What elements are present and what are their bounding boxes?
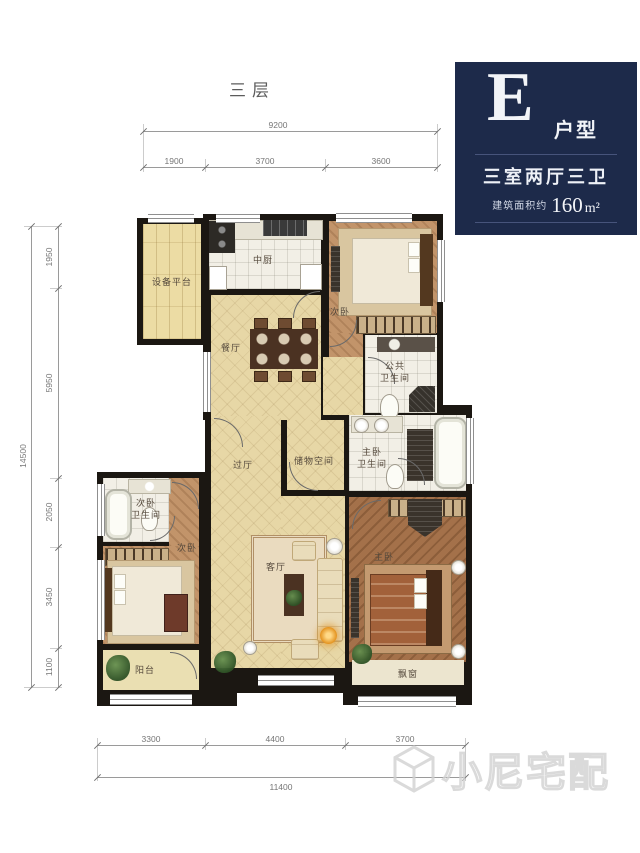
dim-bottom-seg-2: 4400: [245, 734, 305, 744]
label-balcony: 阳台: [115, 664, 175, 676]
label-second-bath: 次卧 卫生间: [116, 497, 176, 521]
window-dining: [203, 352, 211, 412]
dining-chair: [302, 318, 316, 329]
label-bay-window: 飘窗: [378, 668, 438, 680]
bedroom-north-wardrobe: [356, 316, 436, 334]
pillow: [114, 590, 126, 605]
label-master: 主卧: [354, 551, 414, 563]
window-bay: [358, 696, 456, 707]
window-living: [258, 675, 334, 686]
area-label: 建筑面积约: [492, 201, 547, 212]
dim-top-seg-1: 1900: [144, 156, 204, 166]
fridge: [300, 264, 322, 290]
second-bath-sink-counter: [128, 479, 171, 494]
dim-left-seg-1: 1950: [44, 240, 54, 274]
plant: [214, 651, 236, 673]
entry-hall: [323, 357, 363, 415]
label-dining: 餐厅: [201, 342, 261, 354]
dim-left-seg-5: 1100: [44, 650, 54, 684]
master-bath-sink: [354, 418, 369, 433]
dim-left-seg-3: 2050: [44, 495, 54, 529]
range-hood: [263, 220, 307, 236]
floor-plan-page: 三层 E 户型 三室两厅三卫 建筑面积约160m² 9200 1900 3700…: [0, 0, 640, 853]
label-bedroom-west: 次卧: [157, 542, 217, 554]
dim-left-seg-2: 5950: [44, 366, 54, 400]
label-kitchen: 中厨: [233, 254, 293, 266]
window-master-bath: [466, 418, 474, 484]
window-equipment: [148, 214, 194, 223]
pillow: [408, 242, 420, 257]
master-headboard: [426, 570, 442, 646]
dining-chair: [302, 371, 316, 382]
window-bedroom-north: [336, 213, 412, 223]
window-bedroom-north-east: [437, 240, 445, 302]
dim-line-top-total: [143, 131, 437, 132]
bedroom-north-headboard: [420, 234, 433, 306]
dining-chair: [254, 318, 268, 329]
dim-left-total: 14500: [18, 439, 28, 473]
public-bath-sink-counter: [377, 337, 435, 352]
ceiling-lamp: [451, 644, 466, 659]
ceiling-lamp: [243, 641, 257, 655]
dining-chair: [278, 318, 292, 329]
unit-area: 建筑面积约160m²: [455, 193, 637, 218]
area-unit: m²: [585, 201, 600, 216]
plant: [286, 590, 302, 606]
label-living: 客厅: [246, 561, 306, 573]
unit-info-box: E 户型 三室两厅三卫 建筑面积约160m²: [455, 62, 637, 235]
master-bath-sink: [374, 418, 389, 433]
label-bedroom-north: 次卧: [310, 306, 370, 318]
dim-line-left-segments: [58, 226, 59, 687]
master-tv-cabinet: [351, 578, 359, 638]
dim-top-total: 9200: [248, 120, 308, 130]
window-kitchen: [216, 214, 260, 223]
dim-left-seg-4: 3450: [44, 580, 54, 614]
pillow: [408, 258, 420, 273]
unit-type-suffix: 户型: [554, 114, 598, 143]
unit-layout-text: 三室两厅三卫: [455, 163, 637, 189]
window-balcony: [110, 694, 192, 705]
dining-chair: [278, 371, 292, 382]
kitchen-sink: [209, 266, 227, 290]
dim-bottom-seg-1: 3300: [121, 734, 181, 744]
window-second-bath: [97, 484, 105, 536]
label-equipment-platform: 设备平台: [142, 276, 202, 288]
watermark-text: 小尼宅配: [442, 740, 610, 798]
watermark: 小尼宅配: [392, 740, 610, 798]
dim-bottom-total: 11400: [251, 782, 311, 792]
dining-chair: [254, 371, 268, 382]
window-bedroom-west: [97, 560, 105, 640]
bedroom-north-dresser: [331, 246, 340, 292]
unit-type-letter: E: [487, 58, 534, 138]
watermark-cube-icon: [392, 744, 436, 794]
dim-line-left-total: [31, 226, 32, 687]
armchair: [292, 541, 316, 561]
floor-level-title: 三层: [222, 76, 282, 101]
area-value: 160: [551, 193, 583, 217]
info-divider-top: [475, 154, 617, 155]
dim-line-top-segments: [143, 167, 437, 168]
ceiling-lamp: [451, 560, 466, 575]
label-master-bath: 主卧 卫生间: [342, 446, 402, 470]
stove: [209, 221, 235, 253]
armchair: [291, 639, 319, 660]
label-public-bath: 公共 卫生间: [365, 360, 425, 384]
pillow: [114, 574, 126, 589]
pillow: [414, 578, 427, 593]
bathtub-master: [434, 417, 467, 489]
bedroom-west-bench: [164, 594, 188, 632]
label-storage: 储物空间: [284, 455, 344, 467]
info-divider-bottom: [475, 222, 617, 223]
label-hallway: 过厅: [213, 459, 273, 471]
bedroom-west-headboard: [104, 568, 112, 632]
dim-top-seg-2: 3700: [235, 156, 295, 166]
plant: [352, 644, 372, 664]
floor-lamp: [320, 627, 337, 644]
pillow: [414, 594, 427, 609]
ceiling-lamp: [326, 538, 343, 555]
dim-top-seg-3: 3600: [351, 156, 411, 166]
